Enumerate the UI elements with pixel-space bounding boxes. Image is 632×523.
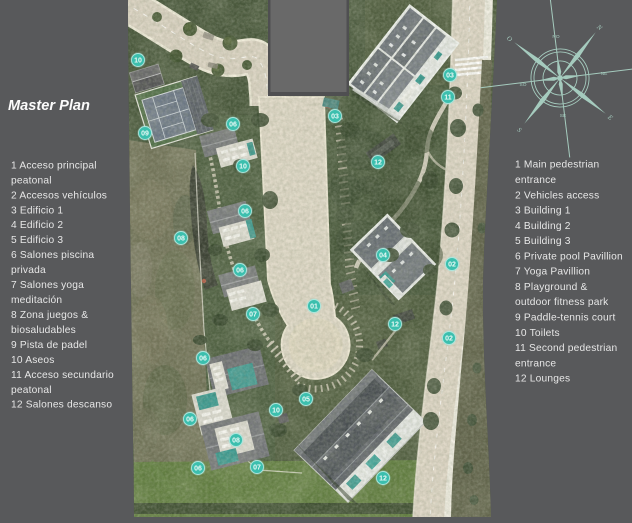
svg-text:biosaludables: biosaludables [11, 325, 76, 336]
svg-text:12: 12 [379, 476, 387, 483]
svg-text:5 Edificio 3: 5 Edificio 3 [11, 235, 63, 246]
svg-text:Master Plan: Master Plan [8, 98, 90, 114]
svg-text:07: 07 [249, 312, 257, 319]
svg-text:02: 02 [448, 262, 456, 269]
svg-text:10: 10 [134, 58, 142, 65]
svg-text:07: 07 [253, 465, 261, 472]
svg-text:12: 12 [374, 160, 382, 167]
svg-text:1 Main pedestrian: 1 Main pedestrian [515, 160, 599, 171]
svg-text:10: 10 [239, 164, 247, 171]
svg-text:7 Salones yoga: 7 Salones yoga [11, 280, 84, 291]
svg-text:entrance: entrance [515, 358, 556, 369]
svg-text:peatonal: peatonal [11, 385, 52, 396]
svg-text:entrance: entrance [515, 175, 556, 186]
svg-text:meditación: meditación [11, 295, 62, 306]
svg-text:04: 04 [379, 253, 387, 260]
svg-text:privada: privada [11, 265, 46, 276]
svg-text:10: 10 [272, 408, 280, 415]
svg-text:S: S [516, 127, 523, 135]
svg-text:05: 05 [302, 397, 310, 404]
svg-text:SE: SE [560, 113, 566, 119]
svg-text:E: E [605, 113, 614, 122]
svg-text:2 Accesos vehículos: 2 Accesos vehículos [11, 190, 107, 201]
svg-text:03: 03 [331, 114, 339, 121]
svg-text:11: 11 [444, 95, 452, 102]
svg-text:NE: NE [601, 71, 608, 77]
svg-text:12 Salones descanso: 12 Salones descanso [11, 400, 112, 411]
svg-text:outdoor fitness park: outdoor fitness park [515, 297, 609, 308]
svg-text:10 Toilets: 10 Toilets [515, 328, 560, 339]
svg-text:06: 06 [194, 466, 202, 473]
svg-text:6 Private pool Pavillion: 6 Private pool Pavillion [515, 251, 623, 262]
svg-text:11 Second pedestrian: 11 Second pedestrian [515, 343, 617, 354]
svg-text:09: 09 [141, 131, 149, 138]
svg-text:06: 06 [241, 209, 249, 216]
svg-text:06: 06 [229, 122, 237, 129]
svg-text:3 Building 1: 3 Building 1 [515, 206, 571, 217]
svg-text:peatonal: peatonal [11, 175, 52, 186]
svg-text:8 Zona juegos &: 8 Zona juegos & [11, 310, 88, 321]
svg-text:O: O [505, 35, 513, 44]
svg-text:3 Edificio 1: 3 Edificio 1 [11, 205, 63, 216]
svg-text:12: 12 [391, 322, 399, 329]
svg-text:12 Lounges: 12 Lounges [515, 374, 570, 385]
svg-text:SO: SO [520, 82, 527, 88]
svg-text:06: 06 [186, 417, 194, 424]
svg-text:7 Yoga Pavillion: 7 Yoga Pavillion [515, 267, 590, 278]
svg-text:10 Aseos: 10 Aseos [11, 355, 55, 366]
svg-text:06: 06 [199, 356, 207, 363]
svg-text:6 Salones piscina: 6 Salones piscina [11, 250, 94, 261]
svg-text:N: N [594, 23, 603, 32]
svg-text:02: 02 [445, 336, 453, 343]
svg-text:08: 08 [177, 236, 185, 243]
svg-text:06: 06 [236, 268, 244, 275]
svg-text:5 Building 3: 5 Building 3 [515, 236, 571, 247]
svg-text:4 Building 2: 4 Building 2 [515, 221, 571, 232]
svg-text:9 Pista de padel: 9 Pista de padel [11, 340, 87, 351]
svg-text:9 Paddle-tennis court: 9 Paddle-tennis court [515, 313, 615, 324]
svg-text:4 Edificio 2: 4 Edificio 2 [11, 220, 63, 231]
svg-text:01: 01 [310, 304, 318, 311]
svg-text:1 Acceso principal: 1 Acceso principal [11, 160, 97, 171]
svg-text:03: 03 [446, 73, 454, 80]
svg-text:NO: NO [552, 34, 559, 40]
svg-text:08: 08 [232, 438, 240, 445]
svg-text:8 Playground &: 8 Playground & [515, 282, 587, 293]
svg-text:2 Vehicles access: 2 Vehicles access [515, 190, 599, 201]
svg-text:11 Acceso secundario: 11 Acceso secundario [11, 370, 114, 381]
